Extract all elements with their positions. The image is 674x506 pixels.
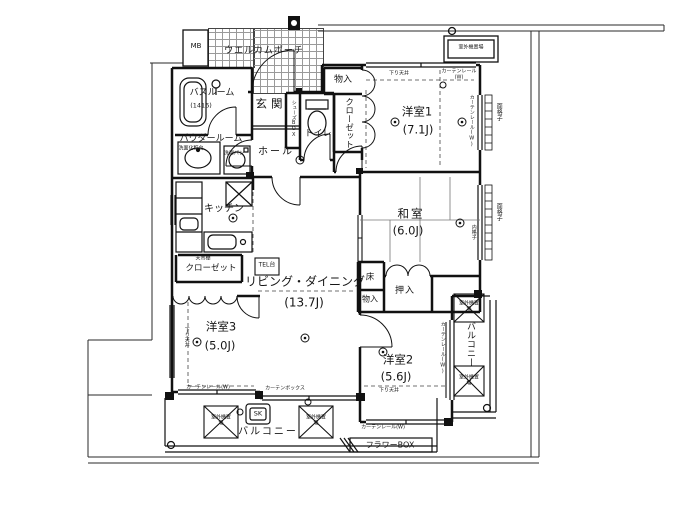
room-size-yoshitsu2: (5.6J): [381, 371, 412, 384]
inner-grille-label: 内格子: [470, 225, 476, 240]
hall-label: ホール: [258, 147, 294, 158]
welcome-porch-label: ウエルカムポーチ: [224, 47, 304, 57]
exterior-lines: [88, 25, 664, 463]
outdoor-unit-label: 室外機置場: [457, 302, 481, 313]
curtain-rail-label: カーテンレール(W): [439, 322, 445, 375]
closet-entry-label: クローゼット: [343, 98, 352, 149]
room-size-living: (13.7J): [284, 296, 324, 309]
curtain-rail-label: カーテンレール(W): [441, 70, 477, 81]
bathroom-label: バスルーム: [190, 89, 235, 99]
laundry-pan-label: 洗濯パン: [224, 151, 244, 157]
room-size-yoshitsu3: (5.0J): [205, 340, 236, 353]
balcony-right-label: バルコニー: [464, 322, 474, 367]
outdoor-unit-label: 室外機置場: [457, 376, 481, 387]
curtain-rail-label: カーテンレール(W): [468, 95, 474, 148]
toko-label: 床: [366, 273, 375, 282]
vanity-label: 洗面化粧台: [178, 146, 203, 152]
floorplan: MB ウエルカムポーチ バスルーム (1416) 玄関 物入 トイレ ホール パ…: [0, 0, 674, 506]
curtain-box-label: カーテンボックス: [265, 386, 305, 392]
slop-sink-label: SK: [254, 410, 262, 417]
outdoor-unit-label: 室外機置場: [304, 416, 328, 427]
mb-label: MB: [191, 43, 202, 51]
lowered-ceiling-label: 下り天井: [389, 71, 409, 77]
lowered-ceiling-label: 下り天井: [183, 327, 189, 347]
window-grille-label: 面格子: [495, 103, 502, 121]
window-grille-label: 面格子: [495, 203, 502, 221]
powder-room-label: パウダールーム: [180, 135, 243, 145]
balcony-bottom-label: バルコニー: [238, 427, 298, 438]
outdoor-unit-label: 室外機置場: [209, 416, 233, 427]
room-label-yoshitsu1: 洋室1: [402, 106, 432, 119]
window-grille-strips: [485, 95, 492, 260]
closet-shelf-note-label: 天吊棚: [195, 256, 210, 262]
kitchen-counter-icon: [176, 182, 252, 252]
room-size-washitsu: (6.0J): [393, 225, 424, 238]
room-size-yoshitsu1: (7.1J): [403, 124, 434, 137]
curtain-rail-label: カーテンレール(W): [361, 425, 405, 431]
bathroom-size-label: (1416): [190, 102, 212, 109]
outdoor-unit-label: 室外機置場: [458, 45, 483, 51]
shoes-box-label: シューズBOX: [290, 100, 296, 138]
oshiire-label: 押入: [395, 287, 415, 297]
room-label-yoshitsu3: 洋室3: [206, 321, 236, 334]
flower-box-label: フラワーBOX: [366, 442, 415, 451]
room-label-washitsu: 和室: [398, 208, 425, 221]
kitchen-label: キッチン: [204, 204, 244, 215]
room-label-yoshitsu2: 洋室2: [383, 354, 413, 367]
genkan-label: 玄関: [256, 98, 287, 111]
tel-stand-label: TEL台: [259, 263, 276, 270]
intercom-icon: [288, 16, 300, 30]
curtain-rail-label: カーテンレール(W): [186, 385, 230, 391]
lowered-ceiling-label: 下り天井: [379, 388, 399, 394]
closet-hall-label: クローゼット: [185, 264, 236, 273]
monoire-top-label: 物入: [334, 76, 352, 86]
toilet-label: トイレ: [304, 130, 331, 140]
monoire-ld-label: 物入: [362, 296, 378, 305]
windows: [170, 63, 482, 424]
room-label-living: リビング・ダイニング: [245, 275, 365, 288]
